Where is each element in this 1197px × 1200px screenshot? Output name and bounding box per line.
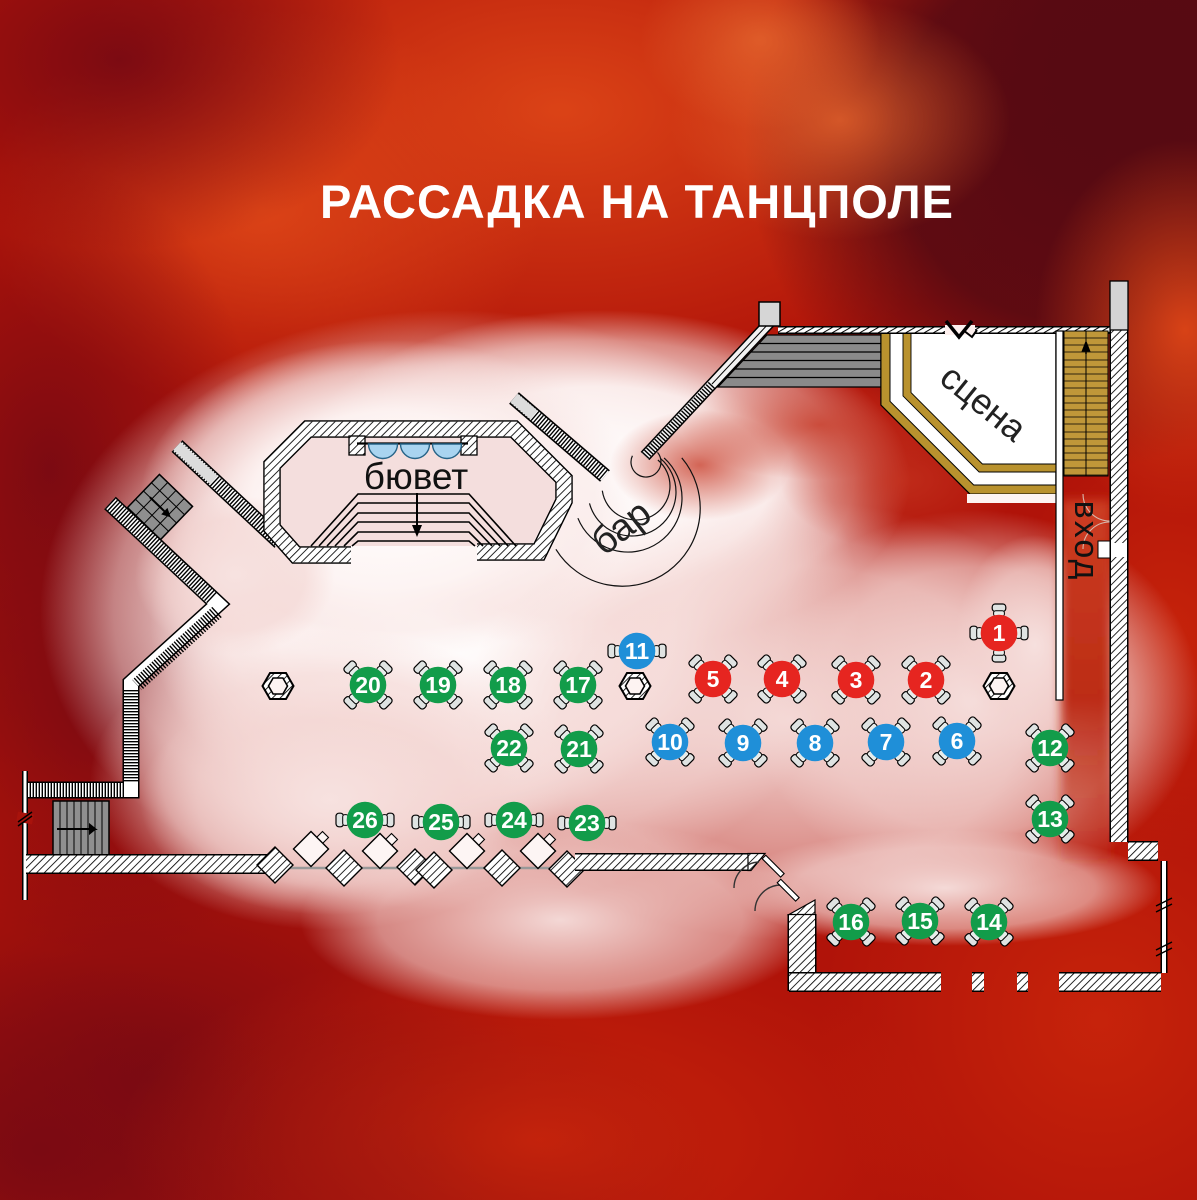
svg-text:14: 14 xyxy=(976,909,1002,935)
svg-text:16: 16 xyxy=(838,909,864,935)
svg-text:15: 15 xyxy=(907,908,933,934)
svg-text:5: 5 xyxy=(707,666,720,692)
svg-text:4: 4 xyxy=(776,666,789,692)
svg-text:23: 23 xyxy=(574,810,600,836)
svg-text:19: 19 xyxy=(425,672,451,698)
svg-text:6: 6 xyxy=(951,728,964,754)
svg-text:26: 26 xyxy=(352,807,378,833)
svg-text:3: 3 xyxy=(850,667,863,693)
svg-text:8: 8 xyxy=(809,730,822,756)
svg-text:20: 20 xyxy=(355,672,381,698)
svg-text:17: 17 xyxy=(565,672,591,698)
svg-text:10: 10 xyxy=(657,729,683,755)
svg-text:бювет: бювет xyxy=(364,456,469,497)
svg-text:25: 25 xyxy=(428,809,454,835)
svg-text:7: 7 xyxy=(880,729,893,755)
svg-text:РАССАДКА НА ТАНЦПОЛЕ: РАССАДКА НА ТАНЦПОЛЕ xyxy=(320,175,954,228)
svg-text:12: 12 xyxy=(1037,735,1063,761)
svg-text:22: 22 xyxy=(496,735,522,761)
svg-text:24: 24 xyxy=(501,807,527,833)
svg-text:18: 18 xyxy=(495,672,521,698)
svg-text:11: 11 xyxy=(625,638,650,664)
svg-text:2: 2 xyxy=(920,667,933,693)
svg-text:13: 13 xyxy=(1037,806,1063,832)
svg-text:21: 21 xyxy=(566,736,592,762)
svg-text:1: 1 xyxy=(993,620,1006,646)
svg-text:9: 9 xyxy=(737,730,750,756)
